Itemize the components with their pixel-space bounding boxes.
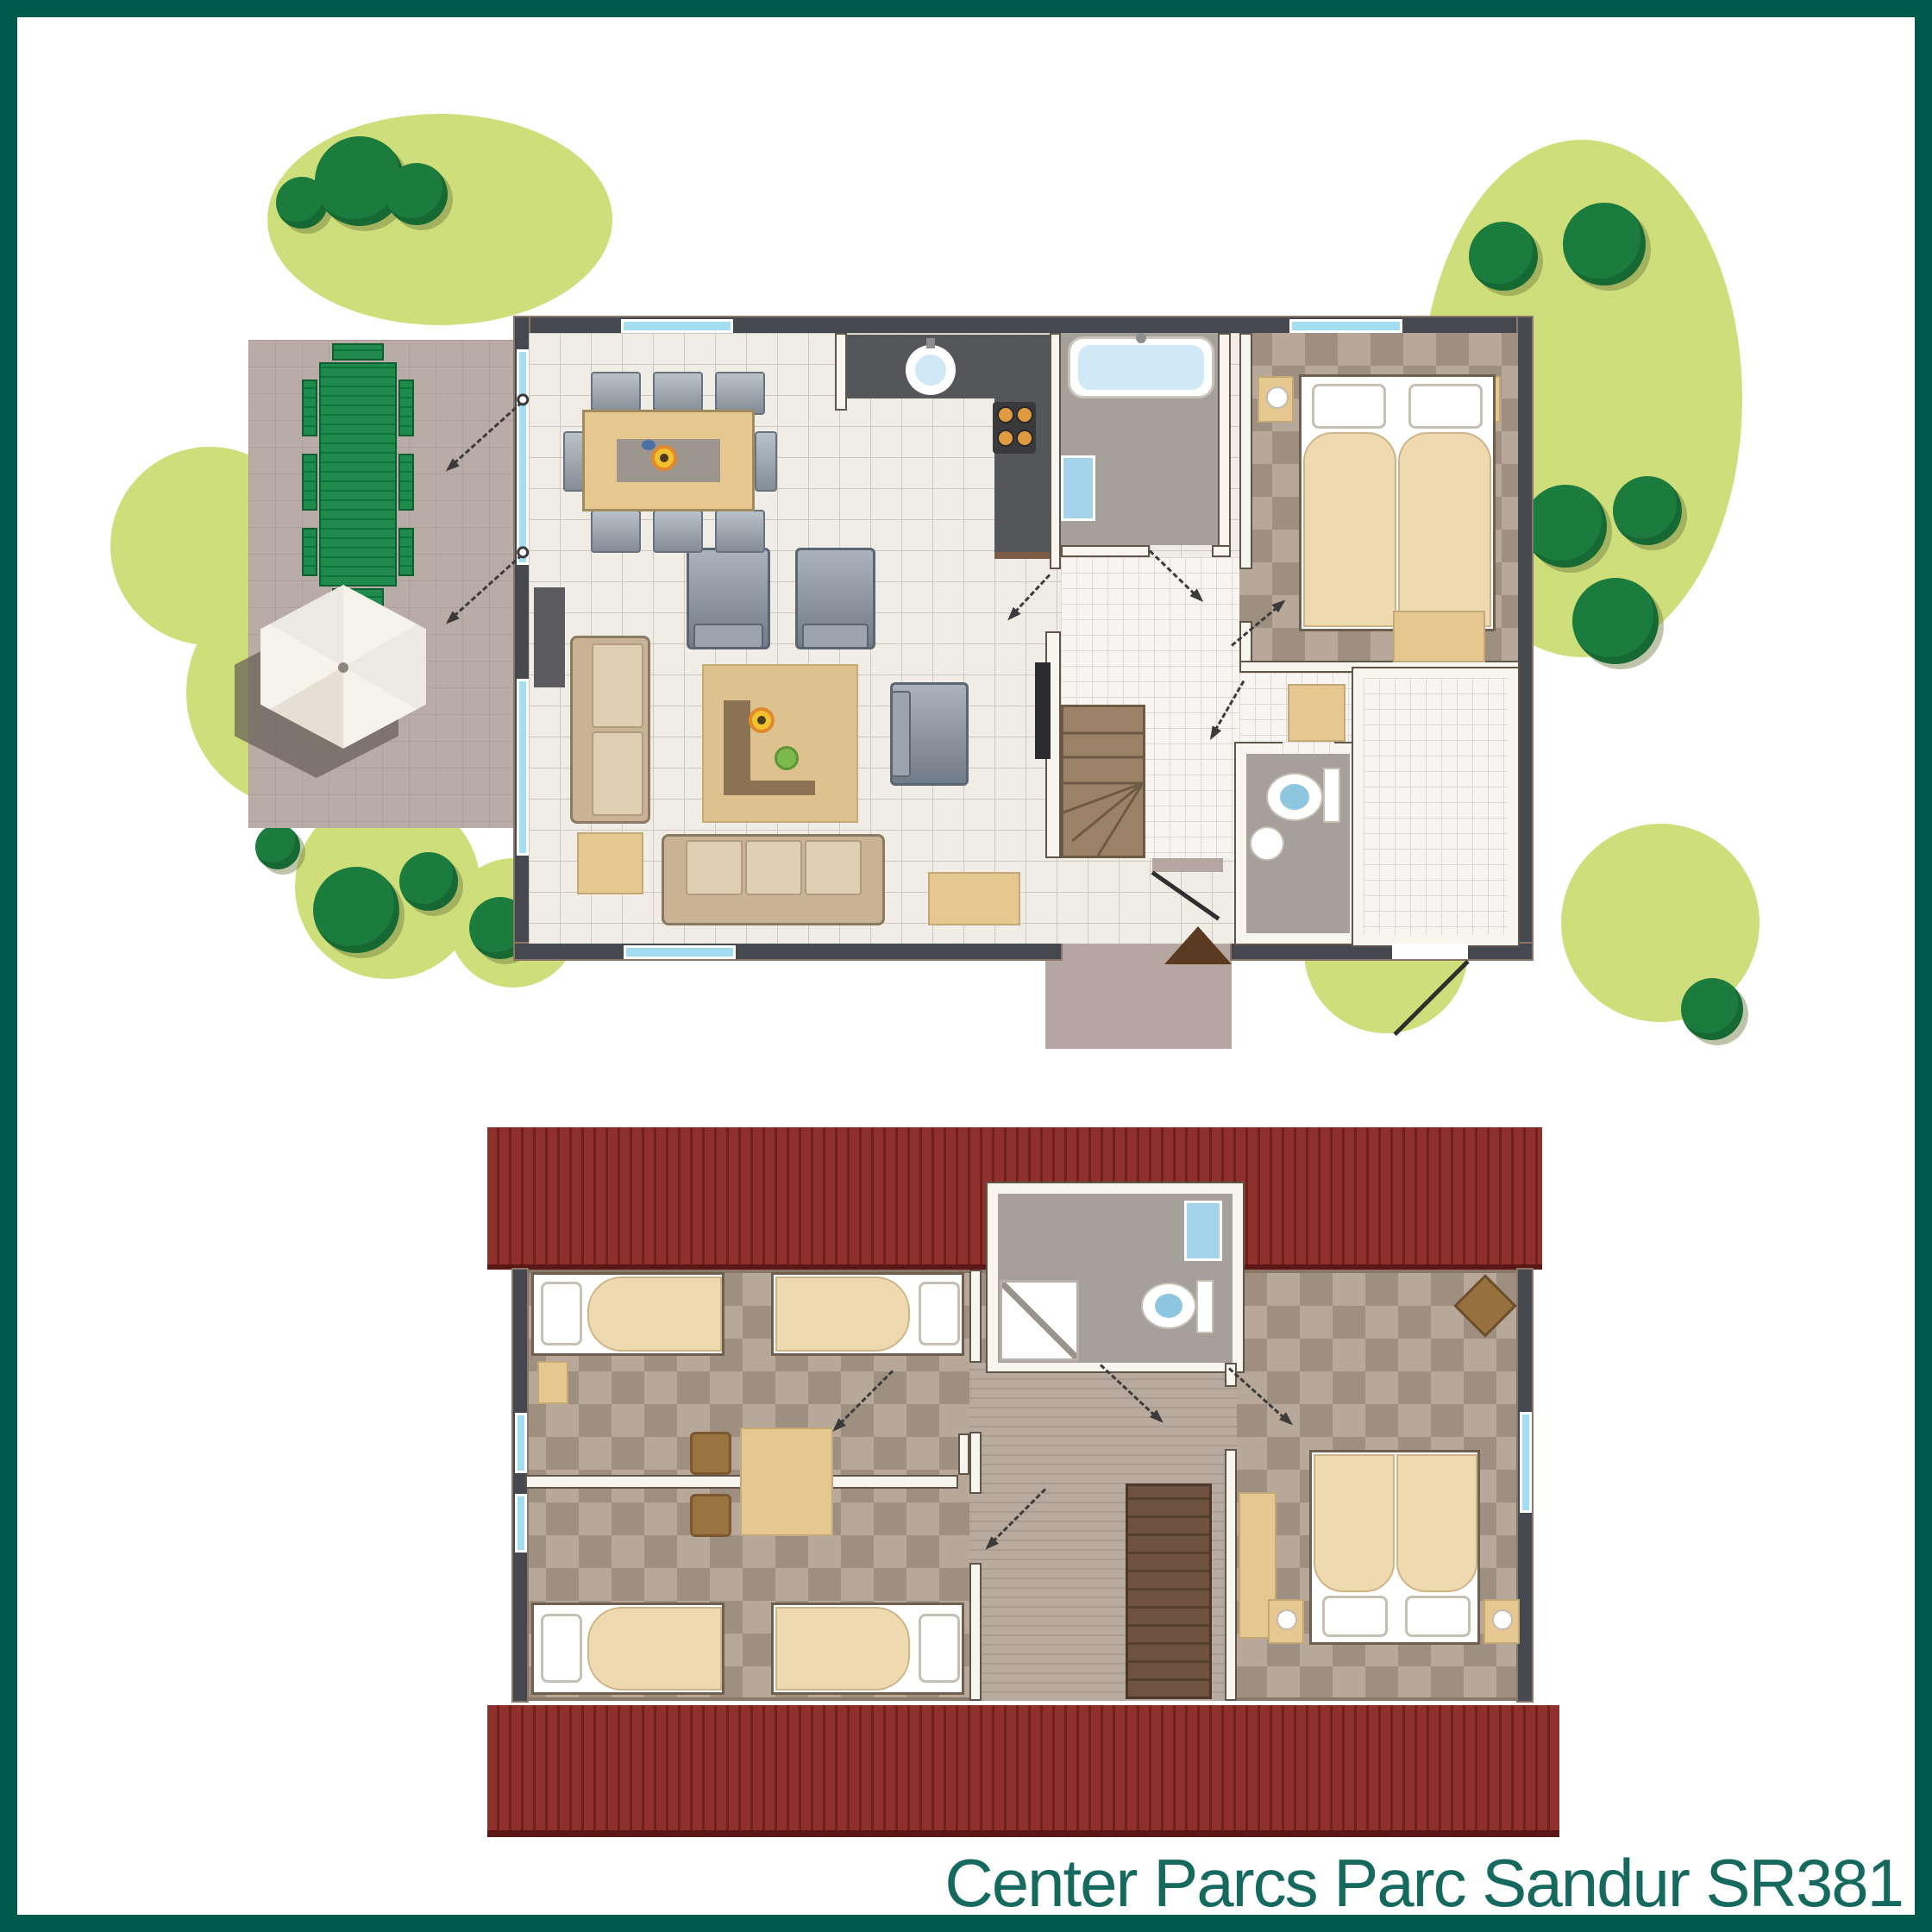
toilet-door-gap	[1283, 742, 1334, 754]
dining-chair	[591, 510, 641, 553]
bush-icon	[255, 825, 300, 869]
window	[621, 319, 733, 333]
ball-icon	[775, 746, 799, 770]
dining-chair	[653, 372, 703, 415]
double-bed	[1299, 374, 1496, 631]
exterior-wall	[1518, 317, 1532, 959]
tree-icon	[1524, 485, 1607, 568]
vase-icon	[642, 440, 655, 450]
picnic-table	[319, 362, 397, 586]
bush-icon	[399, 852, 458, 911]
toilet-water	[1155, 1294, 1182, 1318]
nightstand	[537, 1361, 568, 1404]
bedroom-wall	[969, 1432, 982, 1494]
tree-icon	[1563, 203, 1646, 285]
bathroom-wall	[1212, 545, 1231, 557]
single-bed	[531, 1272, 724, 1356]
double-bed	[1309, 1450, 1480, 1645]
caption: Center Parcs Parc Sandur SR381	[944, 1844, 1903, 1923]
window	[515, 1413, 527, 1473]
single-bed	[771, 1272, 964, 1356]
desk-chair	[690, 1432, 731, 1475]
doormat	[928, 872, 1020, 925]
pillow	[1312, 384, 1386, 429]
bush-icon	[1681, 978, 1743, 1040]
picnic-bench	[398, 528, 414, 576]
floorplan-image: Center Parcs Parc Sandur SR381	[0, 0, 1932, 1932]
flower-center	[757, 716, 766, 724]
tree-icon	[1469, 222, 1538, 291]
parasol-pole	[338, 662, 348, 673]
flower-center	[660, 454, 668, 462]
roof	[487, 1701, 1559, 1837]
sofa-cushion	[592, 731, 643, 816]
shower-icon	[1000, 1280, 1079, 1361]
kitchen-wall-stub	[835, 333, 847, 411]
sideboard	[534, 587, 565, 687]
window	[515, 1494, 527, 1552]
lamp-icon	[1266, 386, 1289, 409]
window	[517, 349, 529, 565]
storage-floor	[1364, 678, 1508, 935]
picnic-bench	[332, 343, 384, 361]
bathroom-wall	[1061, 545, 1150, 557]
desk-chair	[690, 1494, 731, 1537]
storage-exterior-door-gap	[1392, 944, 1468, 959]
tv-icon	[1035, 662, 1051, 759]
bed-blanket	[1398, 432, 1491, 627]
pillow	[1322, 1596, 1388, 1637]
tree-icon	[386, 163, 448, 225]
bush-icon	[313, 867, 399, 953]
pillow	[919, 1614, 960, 1683]
sofa	[662, 834, 885, 925]
burner-icon	[1016, 406, 1033, 423]
pillow	[541, 1614, 582, 1683]
entrance-arrow-icon	[1164, 926, 1232, 964]
dining-chair	[653, 510, 703, 553]
sofa-cushion	[686, 840, 743, 895]
faucet-icon	[1136, 333, 1146, 343]
armchair	[890, 682, 969, 786]
coffee-table	[724, 781, 815, 795]
bed-bench	[1393, 611, 1485, 662]
picnic-bench	[398, 454, 414, 511]
bedroom-wall	[969, 1563, 982, 1701]
bathroom-wall	[1050, 333, 1061, 569]
window	[624, 945, 736, 959]
exterior-wall	[515, 944, 1061, 959]
corner-basin	[1250, 826, 1284, 861]
sofa-cushion	[592, 643, 643, 728]
chest	[1288, 684, 1345, 742]
burner-icon	[1016, 430, 1033, 447]
dining-chair	[715, 372, 765, 415]
loveseat	[570, 636, 650, 824]
armchair	[687, 548, 770, 649]
counter-end	[994, 552, 1050, 559]
bedroom-wall	[969, 1270, 982, 1363]
bathtub-water	[1078, 345, 1204, 390]
sofa-cushion	[745, 840, 802, 895]
ottoman	[577, 832, 643, 894]
toilet-cistern	[1323, 768, 1340, 823]
dining-chair	[755, 431, 777, 492]
bed-blanket	[587, 1276, 722, 1352]
lamp-icon	[1276, 1609, 1297, 1630]
pillow	[1405, 1596, 1471, 1637]
pillow	[1408, 384, 1483, 429]
bed-blanket	[1396, 1454, 1477, 1592]
sofa-cushion	[805, 840, 862, 895]
pillow	[541, 1282, 582, 1345]
faucet-icon	[926, 338, 935, 348]
window	[517, 679, 529, 856]
pillow	[919, 1282, 960, 1345]
bedroom-wall	[1239, 333, 1252, 569]
tree-icon	[1613, 476, 1682, 545]
picnic-bench	[302, 454, 317, 511]
tree-icon	[1572, 578, 1659, 664]
burner-icon	[997, 430, 1014, 447]
lamp-icon	[1492, 1609, 1513, 1630]
single-bed	[771, 1603, 964, 1695]
toilet-water	[1280, 784, 1309, 810]
bed-blanket	[775, 1276, 910, 1352]
dining-chair	[591, 372, 641, 415]
bed-blanket	[1314, 1454, 1395, 1592]
bedroom-wall	[1225, 1449, 1237, 1701]
dining-chair	[715, 510, 765, 553]
desk	[740, 1427, 833, 1536]
picnic-bench	[302, 528, 317, 576]
bed-blanket	[587, 1607, 722, 1690]
bed-blanket	[1303, 432, 1396, 627]
washbasin	[1061, 455, 1095, 521]
staircase	[1061, 705, 1145, 858]
entrance-door-gap	[1152, 858, 1223, 872]
single-bed	[531, 1603, 724, 1695]
window	[1289, 319, 1402, 333]
window	[1520, 1412, 1532, 1513]
kitchen-sink-basin	[915, 354, 946, 386]
toilet-cistern	[1196, 1280, 1214, 1333]
washbasin	[1184, 1201, 1222, 1261]
picnic-bench	[302, 379, 317, 436]
bedroom-wall	[958, 1433, 969, 1475]
burner-icon	[997, 406, 1014, 423]
bathroom-wall	[1218, 333, 1231, 557]
staircase	[1126, 1483, 1212, 1699]
picnic-bench	[398, 379, 414, 436]
bed-blanket	[775, 1607, 910, 1690]
armchair	[795, 548, 875, 649]
